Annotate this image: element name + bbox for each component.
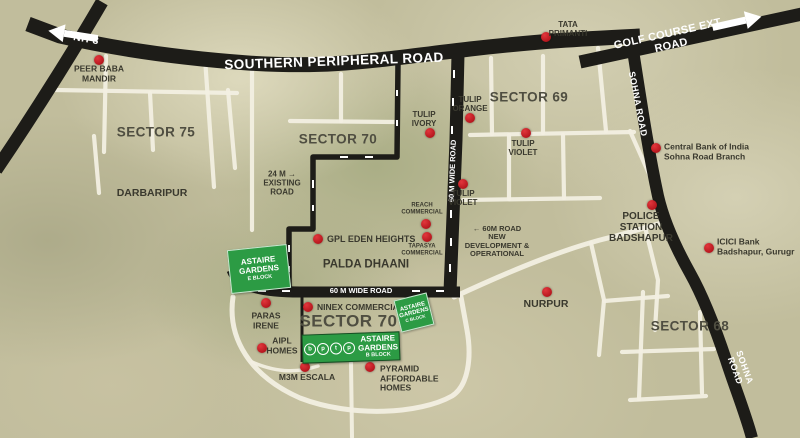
gpl-eden-heights: GPL EDEN HEIGHTS [327,234,415,244]
aipl-homes: AIPL HOMES [266,336,297,355]
icici-bank-badshapur-marker [704,243,714,253]
sector-68-label: SECTOR 68 [651,318,729,333]
tapasya-commercial-marker [422,232,432,242]
sohna-road-label-upper: SOHNA ROAD [627,71,650,138]
pyramid-affordable-homes-marker [365,362,375,372]
police-station-badshapur-marker [647,200,657,210]
astaire-e-sub: E BLOCK [247,274,272,283]
60m-road-new-dev-label: ← 60M ROAD NEW DEVELOPMENT & OPERATIONAL [465,225,530,259]
tulip-violet-lower: TULIP VIOLET [449,190,478,208]
nh8-label: NH 8 [72,32,100,48]
bptp-logo-letter: p [317,342,329,354]
tata-primanti: TATA PRIMANTI [549,21,588,39]
ninex-commercial-marker [303,302,313,312]
reach-commercial-marker [421,219,431,229]
sector-69-label: SECTOR 69 [490,89,568,104]
bptp-logo-letter: p [343,341,355,353]
ninex-commercial: NINEX COMMERCIAL [317,303,404,313]
astaire-gardens-e-block: ASTAIRE GARDENS E BLOCK [227,244,291,294]
astaire-e-name: ASTAIRE GARDENS [238,255,280,276]
paras-irene-marker [261,298,271,308]
bptp-logo-letter: b [304,343,316,355]
golf-course-ext-road-label: GOLF COURSE EXT. ROAD [604,14,736,66]
central-bank-sohna-branch-marker [651,143,661,153]
astaire-b-sub: B BLOCK [366,352,391,359]
bptp-logo: b p t p [301,341,355,355]
peer-baba-mandir: PEER BABA MANDIR [74,64,124,83]
tapasya-commercial: TAPASYA COMMERCIAL [401,243,442,256]
central-bank-sohna-branch: Central Bank of India Sohna Road Branch [664,142,749,161]
palda-dhaani-label: PALDA DHAANI [323,259,409,272]
tulip-ivory-marker [425,128,435,138]
astaire-gardens-b-block: b p t p ASTAIRE GARDENS B BLOCK [302,331,401,363]
tulip-violet-lower-marker [458,179,468,189]
darbaripur-label: DARBARIPUR [117,188,188,200]
icici-bank-badshapur: ICICI Bank Badshapur, Gurugr [717,237,794,256]
gpl-eden-heights-marker [313,234,323,244]
tulip-ivory: TULIP IVORY [412,111,437,129]
tulip-orange: TULIP ORANGE [452,96,487,114]
reach-commercial: REACH COMMERCIAL [401,202,442,215]
bptp-logo-letter: t [330,342,342,354]
60m-wide-road-horizontal-label: 60 M WIDE ROAD [330,287,393,295]
spr-road-label: SOUTHERN PERIPHERAL ROAD [224,50,444,73]
astaire-b-name: ASTAIRE GARDENS [358,334,399,352]
nurpur-label: NURPUR [524,299,569,311]
paras-irene: PARAS IRENE [251,311,280,330]
sector-70-label: SECTOR 70 [299,131,377,146]
markers-layer: SOUTHERN PERIPHERAL ROADNH 8GOLF COURSE … [0,0,800,438]
sohna-road-label-lower: SOHNA ROAD [720,337,759,400]
tulip-orange-marker [465,113,475,123]
m3m-escala: M3M ESCALA [279,373,335,383]
sector-75-label: SECTOR 75 [117,124,195,139]
tulip-violet-upper-marker [521,128,531,138]
astaire-b-text: ASTAIRE GARDENS B BLOCK [358,334,402,358]
nurpur-label-marker [542,287,552,297]
location-map: SOUTHERN PERIPHERAL ROADNH 8GOLF COURSE … [0,0,800,438]
24m-existing-road-label: 24 M → EXISTING ROAD [263,171,300,198]
pyramid-affordable-homes: PYRAMID AFFORDABLE HOMES [380,365,439,394]
police-station-badshapur: POLICE STATION BADSHAPUR [609,211,673,245]
tulip-violet-upper: TULIP VIOLET [509,140,538,158]
